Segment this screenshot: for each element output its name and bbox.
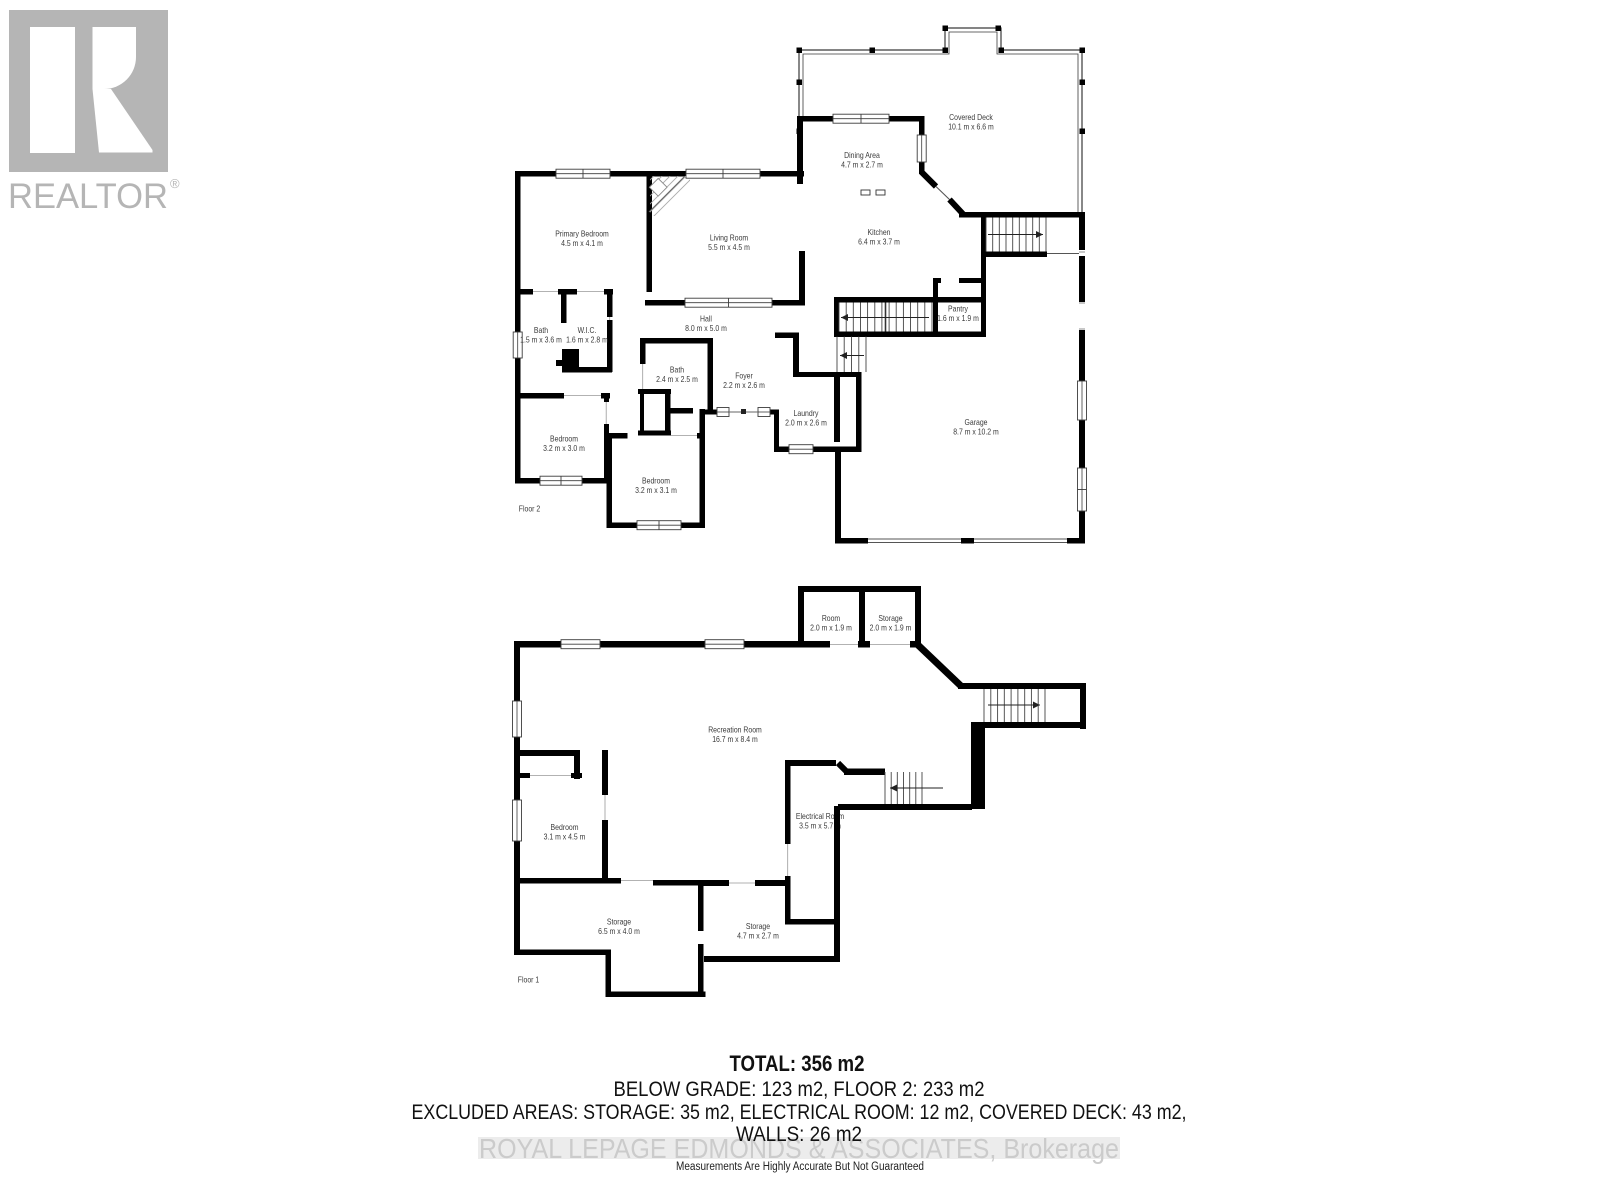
svg-text:Laundry: Laundry	[794, 408, 820, 418]
svg-text:2.0 m x 1.9 m: 2.0 m x 1.9 m	[870, 623, 912, 633]
svg-text:2.2 m x 2.6 m: 2.2 m x 2.6 m	[723, 380, 765, 390]
svg-text:3.2 m x 3.1 m: 3.2 m x 3.1 m	[635, 485, 677, 495]
svg-text:Bath: Bath	[534, 325, 549, 335]
svg-text:2.4 m x 2.5 m: 2.4 m x 2.5 m	[656, 374, 698, 384]
svg-text:8.7 m x 10.2 m: 8.7 m x 10.2 m	[953, 427, 999, 437]
svg-text:Hall: Hall	[700, 314, 712, 324]
svg-text:Storage: Storage	[746, 921, 771, 931]
svg-text:1.5 m x 3.6 m: 1.5 m x 3.6 m	[520, 335, 562, 345]
svg-text:16.7 m x 8.4 m: 16.7 m x 8.4 m	[712, 734, 758, 744]
svg-text:Foyer: Foyer	[735, 371, 753, 381]
svg-text:4.7 m x 2.7 m: 4.7 m x 2.7 m	[737, 931, 779, 941]
svg-text:6.5 m x 4.0 m: 6.5 m x 4.0 m	[598, 926, 640, 936]
svg-text:Garage: Garage	[965, 417, 988, 427]
svg-text:Measurements Are Highly Accura: Measurements Are Highly Accurate But Not…	[676, 1161, 924, 1173]
svg-text:5.5 m x 4.5 m: 5.5 m x 4.5 m	[708, 242, 750, 252]
svg-text:Pantry: Pantry	[948, 304, 969, 314]
svg-text:Storage: Storage	[607, 917, 632, 927]
svg-text:EXCLUDED AREAS: STORAGE: 35 m2: EXCLUDED AREAS: STORAGE: 35 m2, ELECTRIC…	[412, 1100, 1187, 1124]
svg-text:Room: Room	[822, 613, 840, 623]
svg-text:Floor 1: Floor 1	[518, 975, 540, 985]
svg-text:10.1 m x 6.6 m: 10.1 m x 6.6 m	[948, 122, 994, 132]
svg-text:Covered Deck: Covered Deck	[949, 112, 993, 122]
svg-text:TOTAL: 356 m2: TOTAL: 356 m2	[730, 1051, 865, 1076]
svg-text:3.2 m x 3.0 m: 3.2 m x 3.0 m	[543, 443, 585, 453]
svg-text:2.0 m x 2.6 m: 2.0 m x 2.6 m	[785, 418, 827, 428]
svg-text:BELOW GRADE: 123 m2, FLOOR 2:: BELOW GRADE: 123 m2, FLOOR 2: 233 m2	[614, 1077, 985, 1101]
svg-text:4.7 m x 2.7 m: 4.7 m x 2.7 m	[841, 160, 883, 170]
svg-text:6.4 m x 3.7 m: 6.4 m x 3.7 m	[858, 237, 900, 247]
svg-text:®: ®	[170, 176, 180, 191]
svg-text:Bedroom: Bedroom	[550, 434, 578, 444]
svg-text:1.6 m x 2.8 m: 1.6 m x 2.8 m	[566, 335, 608, 345]
svg-text:Primary Bedroom: Primary Bedroom	[555, 229, 609, 239]
svg-text:Bedroom: Bedroom	[551, 822, 579, 832]
svg-text:Bedroom: Bedroom	[642, 476, 670, 486]
svg-text:Dining Area: Dining Area	[844, 150, 880, 160]
svg-text:Storage: Storage	[878, 613, 903, 623]
svg-text:WALLS: 26 m2: WALLS: 26 m2	[736, 1122, 862, 1146]
svg-text:Living Room: Living Room	[710, 233, 748, 243]
svg-text:W.I.C.: W.I.C.	[578, 325, 597, 335]
svg-text:Recreation Room: Recreation Room	[708, 725, 762, 735]
svg-text:Kitchen: Kitchen	[868, 227, 891, 237]
svg-text:Floor 2: Floor 2	[519, 504, 541, 514]
svg-text:2.0 m x 1.9 m: 2.0 m x 1.9 m	[810, 623, 852, 633]
svg-text:8.0 m x 5.0 m: 8.0 m x 5.0 m	[685, 323, 727, 333]
svg-text:REALTOR: REALTOR	[8, 177, 168, 216]
svg-text:1.6 m x 1.9 m: 1.6 m x 1.9 m	[937, 313, 979, 323]
svg-text:3.1 m x 4.5 m: 3.1 m x 4.5 m	[544, 832, 586, 842]
svg-text:4.5 m x 4.1 m: 4.5 m x 4.1 m	[561, 238, 603, 248]
svg-text:Bath: Bath	[670, 365, 685, 375]
